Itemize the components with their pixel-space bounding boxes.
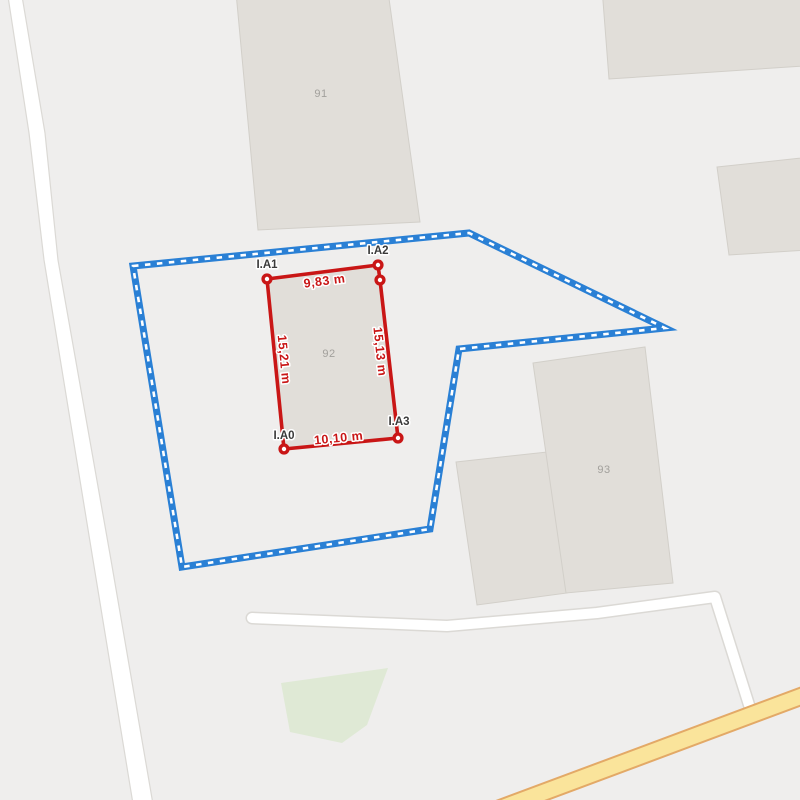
point-label-a3: I.A3 [388,416,409,428]
parcel-label-92: 92 [322,348,335,360]
point-label-a0: I.A0 [273,430,294,442]
building-right [717,153,800,255]
measure-point-a3[interactable] [394,434,402,442]
point-label-a1: I.A1 [256,259,278,271]
measure-point-a1[interactable] [263,275,271,283]
map-canvas[interactable]: 91 92 93 I.A0 I.A1 I.A2 I.A3 9,83 m 15,1… [0,0,800,800]
measure-point-a0[interactable] [280,445,288,453]
parcel-label-91: 91 [314,88,327,100]
building-top-right [601,0,800,79]
point-label-a2: I.A2 [367,245,388,257]
parcel-label-93: 93 [597,464,610,476]
measure-point-a2[interactable] [374,261,382,269]
measure-point-a2b[interactable] [376,276,384,284]
building-91 [233,0,420,230]
